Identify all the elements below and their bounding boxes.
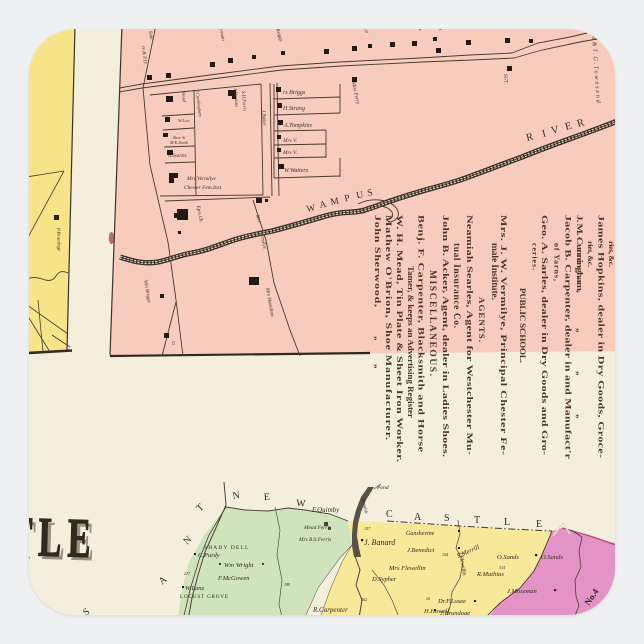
svg-text:217: 217 (184, 571, 191, 576)
svg-text:rs Briggs: rs Briggs (283, 90, 306, 96)
svg-text:H.Strang: H.Strang (282, 106, 305, 112)
svg-text:262: 262 (361, 597, 367, 602)
svg-text:W.Lane: W.Lane (185, 585, 205, 592)
svg-text:„: „ (575, 414, 585, 419)
svg-text:R.Mathias: R.Mathias (476, 571, 504, 578)
svg-text:Ganshevine: Ganshevine (406, 531, 435, 537)
svg-text:W.Watters: W.Watters (284, 168, 309, 174)
svg-text:P.Brundage: P.Brundage (55, 227, 61, 252)
svg-text:W. H. Mead, Tin Plate & Sheet: W. H. Mead, Tin Plate & Sheet Iron Worke… (395, 215, 404, 462)
svg-text:SHADY DELL: SHADY DELL (204, 545, 250, 551)
svg-text:E: E (263, 492, 270, 503)
svg-text:Mathew O'Brion, Shoe Manufactu: Mathew O'Brion, Shoe Manufacturer. (384, 215, 393, 440)
svg-text:O.Sands: O.Sands (541, 554, 563, 561)
svg-text:199: 199 (284, 582, 290, 587)
svg-text:Mrs Flewellin: Mrs Flewellin (388, 565, 426, 572)
svg-text:Wm Wright: Wm Wright (224, 562, 254, 569)
svg-text:Mrs V.: Mrs V. (282, 150, 297, 156)
svg-text:W: W (296, 498, 307, 510)
svg-text:LOCUST GROVE: LOCUST GROVE (180, 594, 229, 600)
svg-text:Chester Fem.Inst.: Chester Fem.Inst. (184, 185, 222, 191)
svg-text:PUBLIC SCHOOL.: PUBLIC SCHOOL. (518, 288, 528, 363)
svg-text:A: A (414, 512, 422, 523)
svg-text:C: C (386, 509, 393, 520)
svg-text:Mrs V.: Mrs V. (282, 138, 297, 144)
svg-text:J.Moseman: J.Moseman (507, 588, 537, 595)
svg-text:Jacob B. Carpenter, dealer in: Jacob B. Carpenter, dealer in and Manufa… (563, 215, 572, 459)
svg-text:Benj. F. Carpenter, Blacksmith: Benj. F. Carpenter, Blacksmith and Horse (416, 215, 425, 452)
svg-text:O.Sands: O.Sands (497, 554, 519, 561)
svg-text:T: T (474, 515, 480, 526)
svg-text:L: L (504, 517, 510, 528)
svg-text:154: 154 (442, 552, 448, 557)
svg-text:W: W (306, 203, 317, 215)
svg-text:M.K.Smith: M.K.Smith (169, 140, 188, 145)
svg-text:SGT.: SGT. (502, 74, 508, 85)
svg-text:E: E (536, 519, 542, 530)
svg-text:„: „ (373, 336, 383, 341)
svg-text:male Institute.: male Institute. (489, 243, 499, 300)
svg-text:ceries.: ceries. (531, 243, 540, 270)
svg-text:J.Brundage: J.Brundage (440, 610, 470, 615)
svg-text:Mrs B.S.Ferris: Mrs B.S.Ferris (298, 537, 331, 543)
svg-text:R.Carpenter: R.Carpenter (312, 606, 348, 614)
svg-text:314: 314 (499, 565, 505, 570)
svg-text:AGENTS.: AGENTS. (477, 297, 487, 342)
svg-text:„: „ (575, 328, 585, 333)
svg-text:Dr.F.Losee: Dr.F.Losee (437, 598, 466, 605)
svg-text:tual Insurance Co.: tual Insurance Co. (451, 243, 461, 328)
svg-text:STLE: STLE (29, 505, 98, 571)
svg-text:John B. Acker, Agent, dealer i: John B. Acker, Agent, dealer in Ladies S… (441, 215, 450, 457)
svg-text:D.Sypher: D.Sypher (371, 576, 397, 583)
svg-text:Hotel: Hotel (181, 91, 187, 103)
svg-text:J.Baker: J.Baker (260, 110, 267, 127)
svg-text:„: „ (575, 371, 585, 376)
svg-text:F.McGowen: F.McGowen (217, 575, 249, 582)
svg-text:J. Banard: J. Banard (364, 538, 396, 547)
svg-text:C.Purdy: C.Purdy (198, 552, 220, 559)
svg-text:Mrs Vermilye: Mrs Vermilye (186, 176, 216, 182)
svg-text:26: 26 (426, 596, 430, 601)
svg-text:F.Quimby: F.Quimby (311, 506, 340, 514)
svg-text:A.Tompkins: A.Tompkins (283, 123, 313, 129)
svg-text:63: 63 (171, 341, 176, 345)
svg-text:J. M. Cunningham,: J. M. Cunningham, (574, 215, 584, 294)
svg-text:157: 157 (364, 526, 371, 531)
svg-text:Mrs. J. W. Vermilye, Principal: Mrs. J. W. Vermilye, Principal Chester F… (499, 215, 508, 456)
svg-text:MISCELLANEOUS.: MISCELLANEOUS. (427, 270, 437, 376)
svg-text:John Sherwood,: John Sherwood, (373, 215, 382, 307)
svg-text:Pond: Pond (376, 485, 389, 491)
svg-text:J.Benedict: J.Benedict (407, 547, 434, 554)
svg-text:Geo. A. Sarles, dealer in Dry: Geo. A. Sarles, dealer in Dry Goods and … (540, 215, 549, 456)
svg-text:W.Lov: W.Lov (178, 118, 190, 123)
svg-text:S: S (444, 513, 450, 524)
svg-text:„: „ (373, 364, 383, 369)
svg-text:Tamer, & keeps an Advertising: Tamer, & keeps an Advertising Register (406, 266, 416, 418)
svg-text:James Hopkins, dealer in Dry G: James Hopkins, dealer in Dry Goods, Groc… (596, 215, 605, 459)
svg-text:N: N (232, 490, 241, 502)
svg-text:ries, &c.: ries, &c. (586, 241, 595, 267)
svg-text:Neamiah Searles, Agent for Wes: Neamiah Searles, Agent for Westchester M… (465, 215, 474, 456)
svg-text:N.Searles: N.Searles (167, 154, 187, 159)
svg-text:of Yarns,: of Yarns, (553, 243, 562, 281)
svg-text:ries, &c.: ries, &c. (607, 241, 615, 267)
